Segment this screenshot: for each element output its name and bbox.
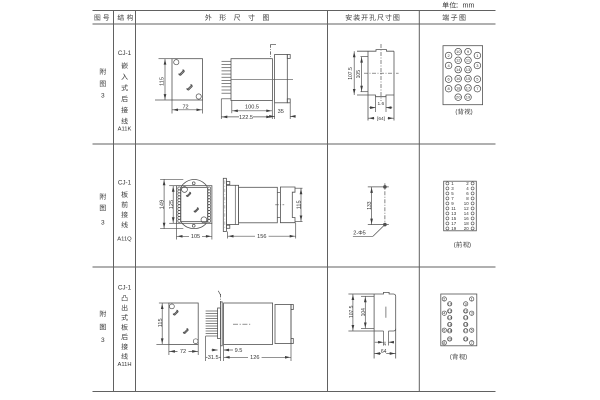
svg-text:14: 14	[448, 316, 452, 320]
svg-text:20: 20	[448, 337, 452, 341]
svg-text:1.6: 1.6	[377, 101, 384, 107]
svg-text:17: 17	[464, 329, 468, 333]
svg-text:CJ-1: CJ-1	[118, 285, 132, 292]
svg-text:126: 126	[250, 355, 259, 361]
svg-text:72: 72	[180, 349, 186, 355]
svg-text:A11H: A11H	[117, 362, 131, 368]
svg-text:15: 15	[466, 76, 471, 81]
svg-text:20: 20	[456, 95, 461, 100]
svg-text:13: 13	[464, 316, 468, 320]
svg-text:(: (	[450, 355, 452, 361]
svg-text:4: 4	[443, 312, 445, 316]
svg-text:8: 8	[443, 341, 445, 345]
svg-text:A11Q: A11Q	[117, 237, 132, 243]
svg-text:16: 16	[382, 341, 387, 346]
svg-text:19: 19	[466, 95, 471, 100]
svg-text:12: 12	[448, 309, 452, 313]
svg-text:35: 35	[278, 109, 284, 115]
svg-text:122.5: 122.5	[239, 115, 253, 121]
svg-text:1: 1	[471, 297, 473, 301]
svg-text:18: 18	[448, 329, 452, 333]
svg-text:18: 18	[456, 85, 461, 90]
svg-text:2: 2	[443, 297, 445, 301]
svg-text:9.5: 9.5	[235, 348, 243, 354]
svg-text:115: 115	[297, 200, 303, 209]
svg-text:15: 15	[464, 323, 468, 327]
svg-text:CJ-1: CJ-1	[118, 50, 132, 57]
svg-text:[64]: [64]	[377, 116, 385, 122]
svg-text:9: 9	[465, 302, 467, 306]
svg-text:16: 16	[448, 323, 452, 327]
svg-text:31.5: 31.5	[208, 355, 219, 361]
svg-text:104: 104	[361, 308, 367, 317]
svg-text:107.5: 107.5	[349, 305, 355, 318]
svg-text:): )	[465, 355, 467, 361]
svg-text:A11K: A11K	[118, 127, 132, 133]
svg-text:10: 10	[456, 49, 461, 54]
svg-text:64: 64	[381, 349, 387, 355]
svg-text:105: 105	[191, 234, 200, 240]
svg-text:9: 9	[467, 49, 470, 54]
svg-text:125: 125	[169, 200, 175, 209]
svg-text:19: 19	[451, 226, 456, 231]
svg-text:8: 8	[447, 86, 450, 91]
svg-text:7: 7	[476, 86, 479, 91]
svg-text:3: 3	[101, 219, 105, 226]
svg-text:133: 133	[367, 201, 373, 210]
svg-text:): )	[469, 243, 471, 249]
svg-text:72: 72	[182, 105, 188, 111]
svg-text:7: 7	[471, 341, 473, 345]
svg-text:11: 11	[464, 309, 468, 313]
svg-text:): )	[471, 110, 473, 116]
svg-text:156: 156	[257, 234, 266, 240]
svg-text:5: 5	[476, 77, 479, 82]
svg-text:3: 3	[471, 312, 473, 316]
svg-text:3: 3	[476, 63, 479, 68]
svg-text:(: (	[455, 110, 457, 116]
svg-text:2: 2	[447, 53, 450, 58]
svg-text:2-Φ5: 2-Φ5	[353, 231, 366, 237]
svg-text:13: 13	[466, 67, 471, 72]
svg-text:12: 12	[456, 58, 461, 63]
svg-text:17: 17	[466, 85, 471, 90]
svg-text:mm: mm	[463, 3, 475, 10]
svg-text:1: 1	[476, 53, 479, 58]
svg-text:6: 6	[447, 77, 450, 82]
svg-text:19: 19	[464, 337, 468, 341]
svg-text:(: (	[454, 243, 456, 249]
svg-text:6: 6	[443, 329, 445, 333]
svg-text:115: 115	[160, 77, 166, 86]
svg-text:5: 5	[471, 329, 473, 333]
svg-text:16: 16	[456, 76, 461, 81]
svg-text:3: 3	[101, 337, 105, 344]
svg-text:100.5: 100.5	[245, 105, 259, 111]
svg-text:149: 149	[160, 200, 166, 209]
svg-text:4: 4	[447, 63, 450, 68]
svg-text:11: 11	[466, 58, 471, 63]
svg-text:105: 105	[356, 70, 362, 79]
svg-text:10: 10	[448, 302, 452, 306]
svg-text:CJ-1: CJ-1	[118, 180, 132, 187]
svg-text:14: 14	[456, 67, 461, 72]
svg-text:3: 3	[101, 93, 105, 100]
svg-text:20: 20	[464, 226, 469, 231]
svg-text:115: 115	[158, 318, 164, 327]
svg-text:107.5: 107.5	[348, 67, 354, 80]
